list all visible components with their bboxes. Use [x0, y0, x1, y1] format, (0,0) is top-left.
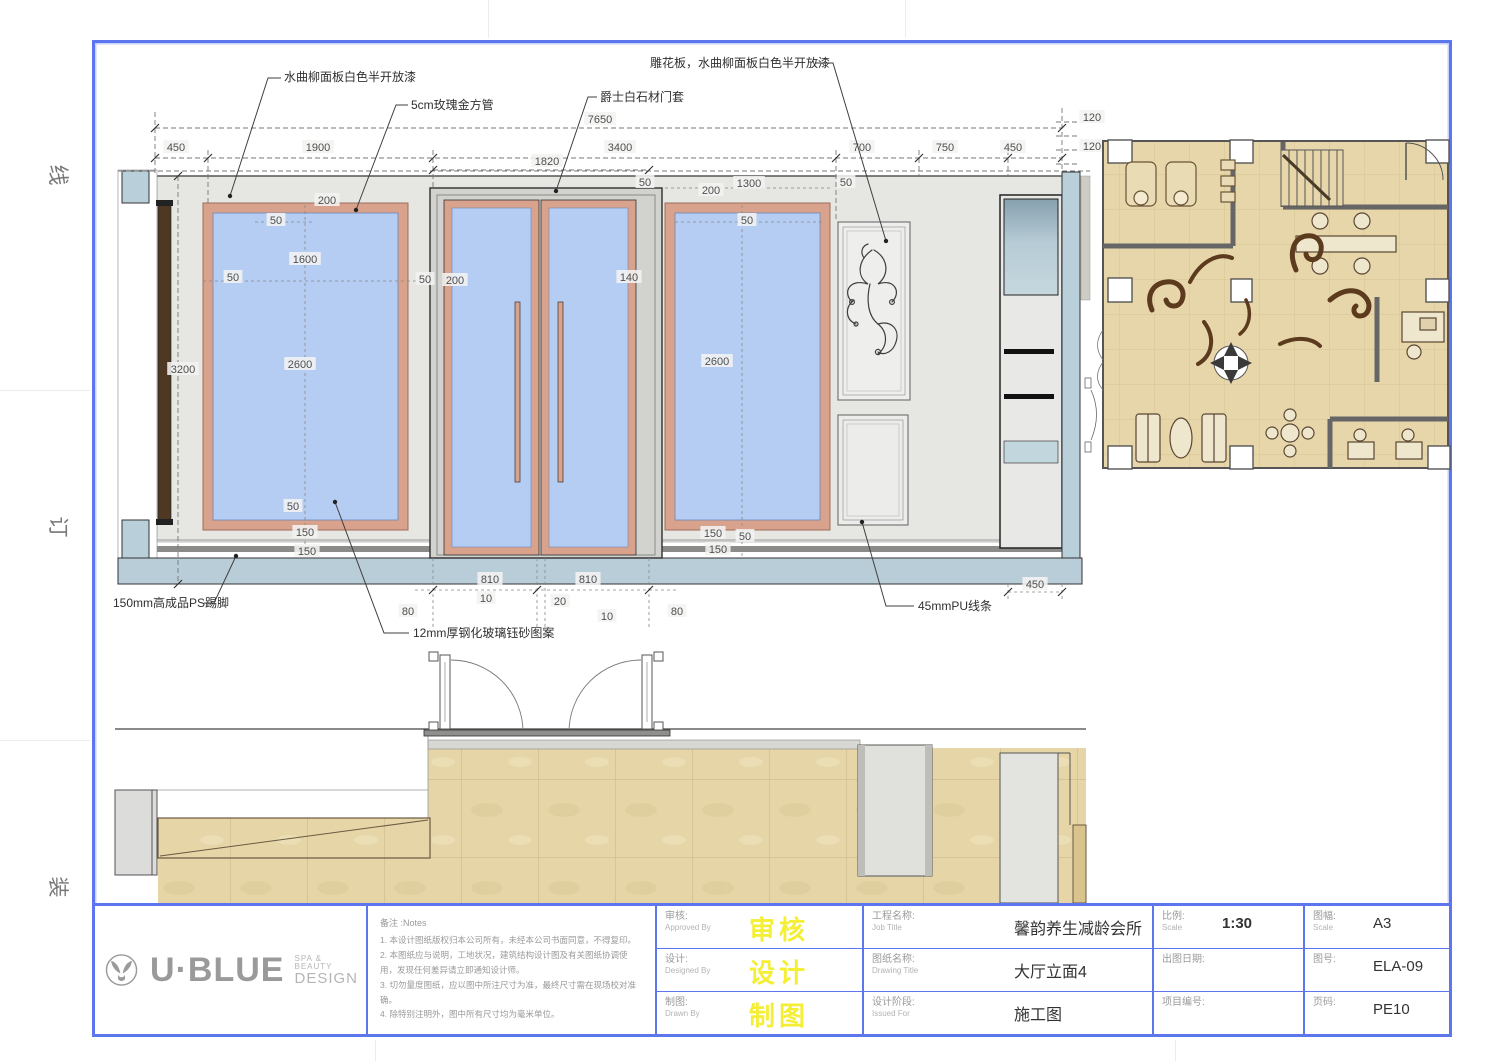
- issue-date-label: 出图日期:: [1162, 954, 1295, 966]
- note-item: 4. 除特别注明外，图中所有尺寸均为毫米单位。: [380, 1007, 643, 1022]
- dim-label: 450: [1026, 579, 1044, 591]
- issue-date-cell: 出图日期:: [1154, 948, 1303, 991]
- side-column-strip: [1062, 172, 1080, 558]
- designed-by-stamp: 设计: [749, 953, 809, 990]
- dim-label: 200: [446, 275, 464, 287]
- approved-by-stamp: 审核: [749, 910, 809, 947]
- annotation-label: 45mmPU线条: [918, 599, 992, 613]
- door-swing-plan: [424, 652, 670, 736]
- dim-label: 50: [739, 531, 751, 543]
- annotation-dot: [860, 520, 864, 524]
- dim-label: 80: [671, 606, 683, 618]
- entry-double-door: [430, 188, 662, 558]
- sheet-info-column: 图幅: Scale A3 图号: ELA-09 页码: PE10: [1303, 906, 1449, 1034]
- dim-label: 810: [579, 574, 597, 586]
- drawing-title-label-en: Drawing Title: [872, 966, 1144, 976]
- issued-for-label: 设计阶段:: [872, 997, 1144, 1009]
- carved-panel: [838, 222, 910, 400]
- dim-label: 50: [270, 215, 282, 227]
- scale-value: 1:30: [1222, 915, 1252, 932]
- job-title-value: 馨韵养生减龄会所: [1014, 915, 1142, 939]
- annotation-dot: [554, 189, 558, 193]
- dim-label: 450: [167, 142, 185, 154]
- logo-cell: U·BLUE SPA & BEAUTY DESIGN: [95, 906, 366, 1034]
- dim-label: 10: [480, 593, 492, 605]
- mini-door-symbol: [1085, 378, 1097, 452]
- marble-floor: [158, 748, 1086, 903]
- ublue-logo-icon: [103, 938, 140, 1002]
- dim-label: 120: [1083, 112, 1101, 124]
- scale-column: 比例: Scale 1:30 出图日期: 项目编号:: [1152, 906, 1303, 1034]
- note-item: 3. 切勿量度图纸，应以图中所注尺寸为准，最终尺寸需在现场校对准确。: [380, 978, 643, 1008]
- dim-label: 150: [296, 527, 314, 539]
- issued-for-cell: 设计阶段: Issued For 施工图: [864, 991, 1152, 1034]
- drawn-by-stamp: 制图: [749, 996, 809, 1033]
- annotation-label: 雕花板，水曲柳面板白色半开放漆: [650, 55, 830, 70]
- sheet-size-value: A3: [1373, 915, 1391, 932]
- dim-label: 50: [227, 272, 239, 284]
- dim-label: 80: [402, 606, 414, 618]
- drawing-title-cell: 图纸名称: Drawing Title 大厅立面4: [864, 948, 1152, 991]
- drawing-title-label: 图纸名称:: [872, 954, 1144, 966]
- drawing-no-cell: 图号: ELA-09: [1305, 948, 1449, 991]
- door-handle: [558, 302, 563, 482]
- dim-label: 120: [1083, 141, 1101, 153]
- brand-name: U·BLUE: [150, 951, 284, 990]
- tagline-line2: DESIGN: [294, 971, 358, 986]
- annotation-dot: [884, 239, 888, 243]
- dim-label: 150: [704, 528, 722, 540]
- dim-label: 10: [601, 611, 613, 623]
- pier-block: [858, 745, 932, 876]
- dim-label: 1820: [535, 156, 559, 168]
- dim-label: 7650: [588, 114, 612, 126]
- issued-for-label-en: Issued For: [872, 1009, 1144, 1019]
- signature-column: 审核: Approved By 审核 设计: Designed By 设计 制图…: [655, 906, 862, 1034]
- stone-reveal: [1081, 176, 1090, 300]
- dim-label: 50: [419, 274, 431, 286]
- approved-by-cell: 审核: Approved By 审核: [657, 906, 862, 948]
- dim-label: 50: [741, 215, 753, 227]
- dim-label: 750: [936, 142, 954, 154]
- project-info-column: 工程名称: Job Title 馨韵养生减龄会所 图纸名称: Drawing T…: [862, 906, 1152, 1034]
- elevation-view: 7650450190034007007504501201201820200501…: [113, 55, 1105, 640]
- wall-block: [115, 790, 157, 875]
- drawing-canvas: 7650450190034007007504501201201820200501…: [0, 0, 1500, 1061]
- drawing-no-value: ELA-09: [1373, 958, 1423, 975]
- dim-label: 200: [702, 185, 720, 197]
- dim-label: 50: [287, 501, 299, 513]
- dim-label: 20: [554, 596, 566, 608]
- dim-label: 140: [620, 272, 638, 284]
- drawing-title-value: 大厅立面4: [1014, 958, 1087, 982]
- dim-label: 810: [481, 574, 499, 586]
- annotation-dot: [333, 500, 337, 504]
- annotation-dot: [354, 208, 358, 212]
- moulding-panel: [838, 415, 908, 525]
- wood-strip: [1073, 825, 1086, 903]
- designed-by-cell: 设计: Designed By 设计: [657, 948, 862, 991]
- annotation-dot: [228, 194, 232, 198]
- dim-label: 700: [853, 142, 871, 154]
- stairs: [1281, 150, 1343, 206]
- page-no-value: PE10: [1373, 1001, 1410, 1018]
- dim-label: 200: [318, 195, 336, 207]
- tagline-line1: SPA & BEAUTY: [294, 955, 358, 971]
- note-item: 2. 本图纸应与说明，工地状况，建筑结构设计图及有关图纸协调使用，发现任何差异请…: [380, 948, 643, 978]
- display-cabinet: [1000, 195, 1062, 548]
- scale-cell: 比例: Scale 1:30: [1154, 906, 1303, 948]
- dim-label: 3200: [171, 364, 195, 376]
- title-block: U·BLUE SPA & BEAUTY DESIGN 备注 :Notes 1. …: [92, 903, 1452, 1037]
- annotation-label: 爵士白石材门套: [600, 89, 684, 104]
- notes-cell: 备注 :Notes 1. 本设计图纸版权归本公司所有，未经本公司书面同意，不得复…: [366, 906, 655, 1034]
- dim-label: 2600: [288, 359, 312, 371]
- glass-panel-right: [665, 203, 830, 530]
- project-no-cell: 项目编号:: [1154, 991, 1303, 1034]
- drawn-by-cell: 制图: Drawn By 制图: [657, 991, 862, 1034]
- brand-tagline: SPA & BEAUTY DESIGN: [294, 955, 358, 986]
- annotation-label: 水曲柳面板白色半开放漆: [284, 69, 416, 84]
- job-title-cell: 工程名称: Job Title 馨韵养生减龄会所: [864, 906, 1152, 948]
- dim-label: 2600: [705, 356, 729, 368]
- dim-label: 50: [639, 177, 651, 189]
- dim-label: 150: [298, 546, 316, 558]
- floor-plan: [1098, 140, 1451, 469]
- annotation-dot: [234, 554, 238, 558]
- annotation-label: 5cm玫瑰金方管: [411, 97, 494, 112]
- drawing-sheet: 线 订 装: [0, 0, 1500, 1061]
- dim-label: 3400: [608, 142, 632, 154]
- note-item: 1. 本设计图纸版权归本公司所有，未经本公司书面同意，不得复印。: [380, 933, 643, 948]
- issued-for-value: 施工图: [1014, 1001, 1062, 1025]
- dim-label: 1300: [737, 178, 761, 190]
- door-handle: [515, 302, 520, 482]
- wall-column: [1000, 753, 1058, 903]
- left-column-section: [118, 170, 173, 560]
- skirting-board: [157, 546, 430, 552]
- dim-label: 1900: [306, 142, 330, 154]
- bottom-plan-section: [115, 652, 1086, 903]
- sheet-size-cell: 图幅: Scale A3: [1305, 906, 1449, 948]
- dim-label: 50: [840, 177, 852, 189]
- annotation-label: 12mm厚钢化玻璃钰砂图案: [413, 625, 554, 640]
- dim-label: 150: [709, 544, 727, 556]
- dim-label: 450: [1004, 142, 1022, 154]
- annotation-label: 150mm高成品PS踢脚: [113, 595, 229, 610]
- page-no-cell: 页码: PE10: [1305, 991, 1449, 1034]
- notes-label: 备注 :Notes: [380, 916, 643, 929]
- dim-label: 1600: [293, 254, 317, 266]
- project-no-label: 项目编号:: [1162, 997, 1295, 1009]
